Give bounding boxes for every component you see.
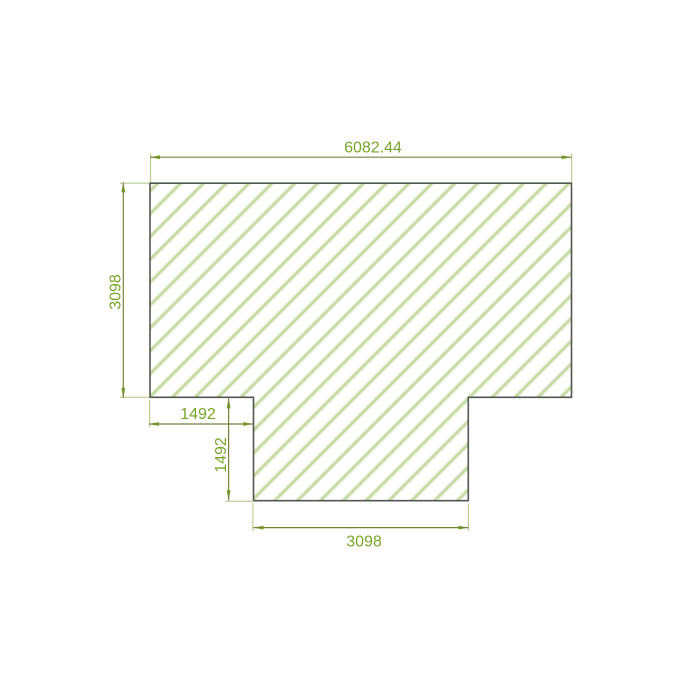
svg-text:3098: 3098 bbox=[108, 274, 125, 310]
svg-text:1492: 1492 bbox=[213, 437, 230, 473]
svg-text:6082.44: 6082.44 bbox=[344, 140, 402, 157]
svg-text:1492: 1492 bbox=[180, 406, 216, 423]
svg-text:3098: 3098 bbox=[346, 533, 382, 550]
